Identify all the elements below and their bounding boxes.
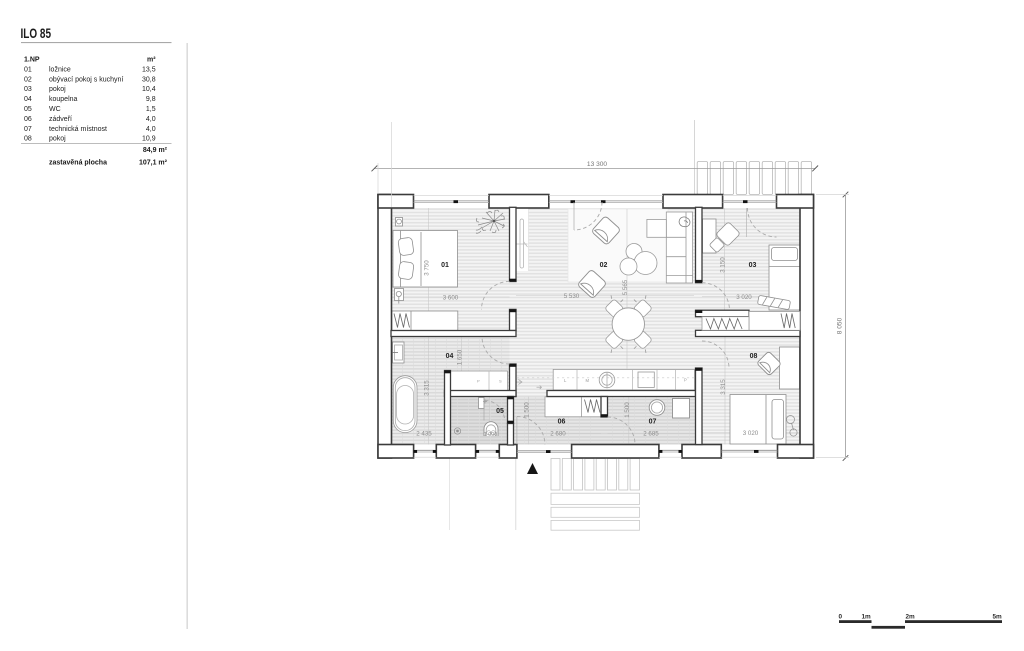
svg-text:01: 01: [24, 66, 32, 73]
svg-text:1 500: 1 500: [524, 402, 531, 418]
svg-text:3 020: 3 020: [736, 294, 752, 301]
svg-text:04: 04: [24, 96, 32, 103]
svg-text:pokoj: pokoj: [49, 86, 66, 93]
svg-text:3 315: 3 315: [720, 379, 727, 395]
svg-text:0: 0: [839, 614, 843, 621]
svg-text:03: 03: [749, 262, 757, 269]
svg-text:koupelna: koupelna: [49, 96, 78, 103]
svg-text:9,8: 9,8: [146, 96, 156, 103]
svg-text:2 680: 2 680: [550, 431, 566, 438]
svg-text:pokoj: pokoj: [49, 136, 66, 143]
svg-text:06: 06: [558, 419, 566, 426]
svg-text:4,0: 4,0: [146, 116, 156, 123]
svg-text:S: S: [499, 379, 502, 384]
svg-text:zastavěná plocha: zastavěná plocha: [49, 160, 107, 167]
svg-text:2 685: 2 685: [643, 431, 659, 438]
svg-text:1 500: 1 500: [624, 402, 631, 418]
svg-text:P: P: [477, 379, 480, 384]
svg-text:3 315: 3 315: [424, 380, 431, 396]
svg-text:M: M: [586, 378, 590, 383]
svg-text:05: 05: [24, 106, 32, 113]
svg-text:02: 02: [600, 262, 608, 269]
svg-text:8 050: 8 050: [837, 317, 844, 334]
svg-text:84,9 m²: 84,9 m²: [143, 147, 168, 154]
svg-text:4,0: 4,0: [146, 126, 156, 133]
svg-text:zádveří: zádveří: [49, 116, 72, 123]
svg-text:1.NP: 1.NP: [24, 57, 40, 64]
svg-text:1,5: 1,5: [146, 106, 156, 113]
svg-text:5 565: 5 565: [622, 279, 629, 295]
svg-text:5m: 5m: [993, 614, 1003, 621]
svg-text:1 650: 1 650: [457, 349, 464, 365]
svg-text:107,1 m²: 107,1 m²: [139, 160, 168, 167]
svg-text:08: 08: [750, 353, 758, 360]
svg-text:3 750: 3 750: [424, 260, 431, 276]
svg-text:05: 05: [496, 408, 504, 415]
svg-text:technická místnost: technická místnost: [49, 126, 107, 133]
svg-text:07: 07: [24, 126, 32, 133]
svg-text:13 300: 13 300: [587, 161, 608, 168]
svg-text:30,8: 30,8: [142, 76, 156, 83]
svg-text:3 150: 3 150: [720, 257, 727, 273]
svg-text:3 600: 3 600: [443, 294, 459, 301]
svg-text:ILO 85: ILO 85: [21, 26, 52, 41]
svg-text:P: P: [684, 378, 687, 383]
svg-text:02: 02: [24, 76, 32, 83]
svg-text:03: 03: [24, 86, 32, 93]
svg-text:1m: 1m: [862, 614, 872, 621]
svg-text:2 435: 2 435: [416, 431, 432, 438]
svg-text:obývací pokoj s kuchyní: obývací pokoj s kuchyní: [49, 76, 123, 83]
svg-text:04: 04: [446, 353, 454, 360]
svg-text:13,5: 13,5: [142, 66, 156, 73]
svg-text:08: 08: [24, 136, 32, 143]
svg-text:10,4: 10,4: [142, 86, 156, 93]
svg-text:01: 01: [441, 262, 449, 269]
svg-text:1 000: 1 000: [484, 432, 498, 438]
svg-text:ložnice: ložnice: [49, 66, 71, 73]
svg-text:WC: WC: [49, 106, 61, 113]
svg-text:m²: m²: [147, 57, 156, 64]
svg-text:10,9: 10,9: [142, 136, 156, 143]
svg-text:2m: 2m: [906, 614, 916, 621]
svg-text:06: 06: [24, 116, 32, 123]
svg-text:5 530: 5 530: [564, 293, 580, 300]
svg-text:3 020: 3 020: [743, 430, 759, 437]
svg-text:07: 07: [649, 419, 657, 426]
